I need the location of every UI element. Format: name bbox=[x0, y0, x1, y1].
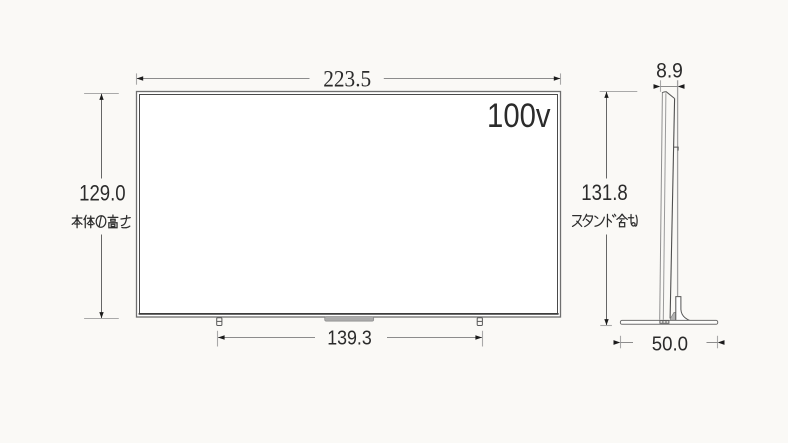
svg-text:139.3: 139.3 bbox=[327, 328, 372, 350]
svg-text:100v: 100v bbox=[487, 97, 551, 135]
svg-text:131.8: 131.8 bbox=[581, 180, 628, 205]
svg-text:50.0: 50.0 bbox=[652, 333, 688, 355]
svg-text:8.9: 8.9 bbox=[656, 59, 683, 83]
svg-text:223.5: 223.5 bbox=[323, 66, 371, 92]
svg-text:129.0: 129.0 bbox=[79, 181, 126, 206]
